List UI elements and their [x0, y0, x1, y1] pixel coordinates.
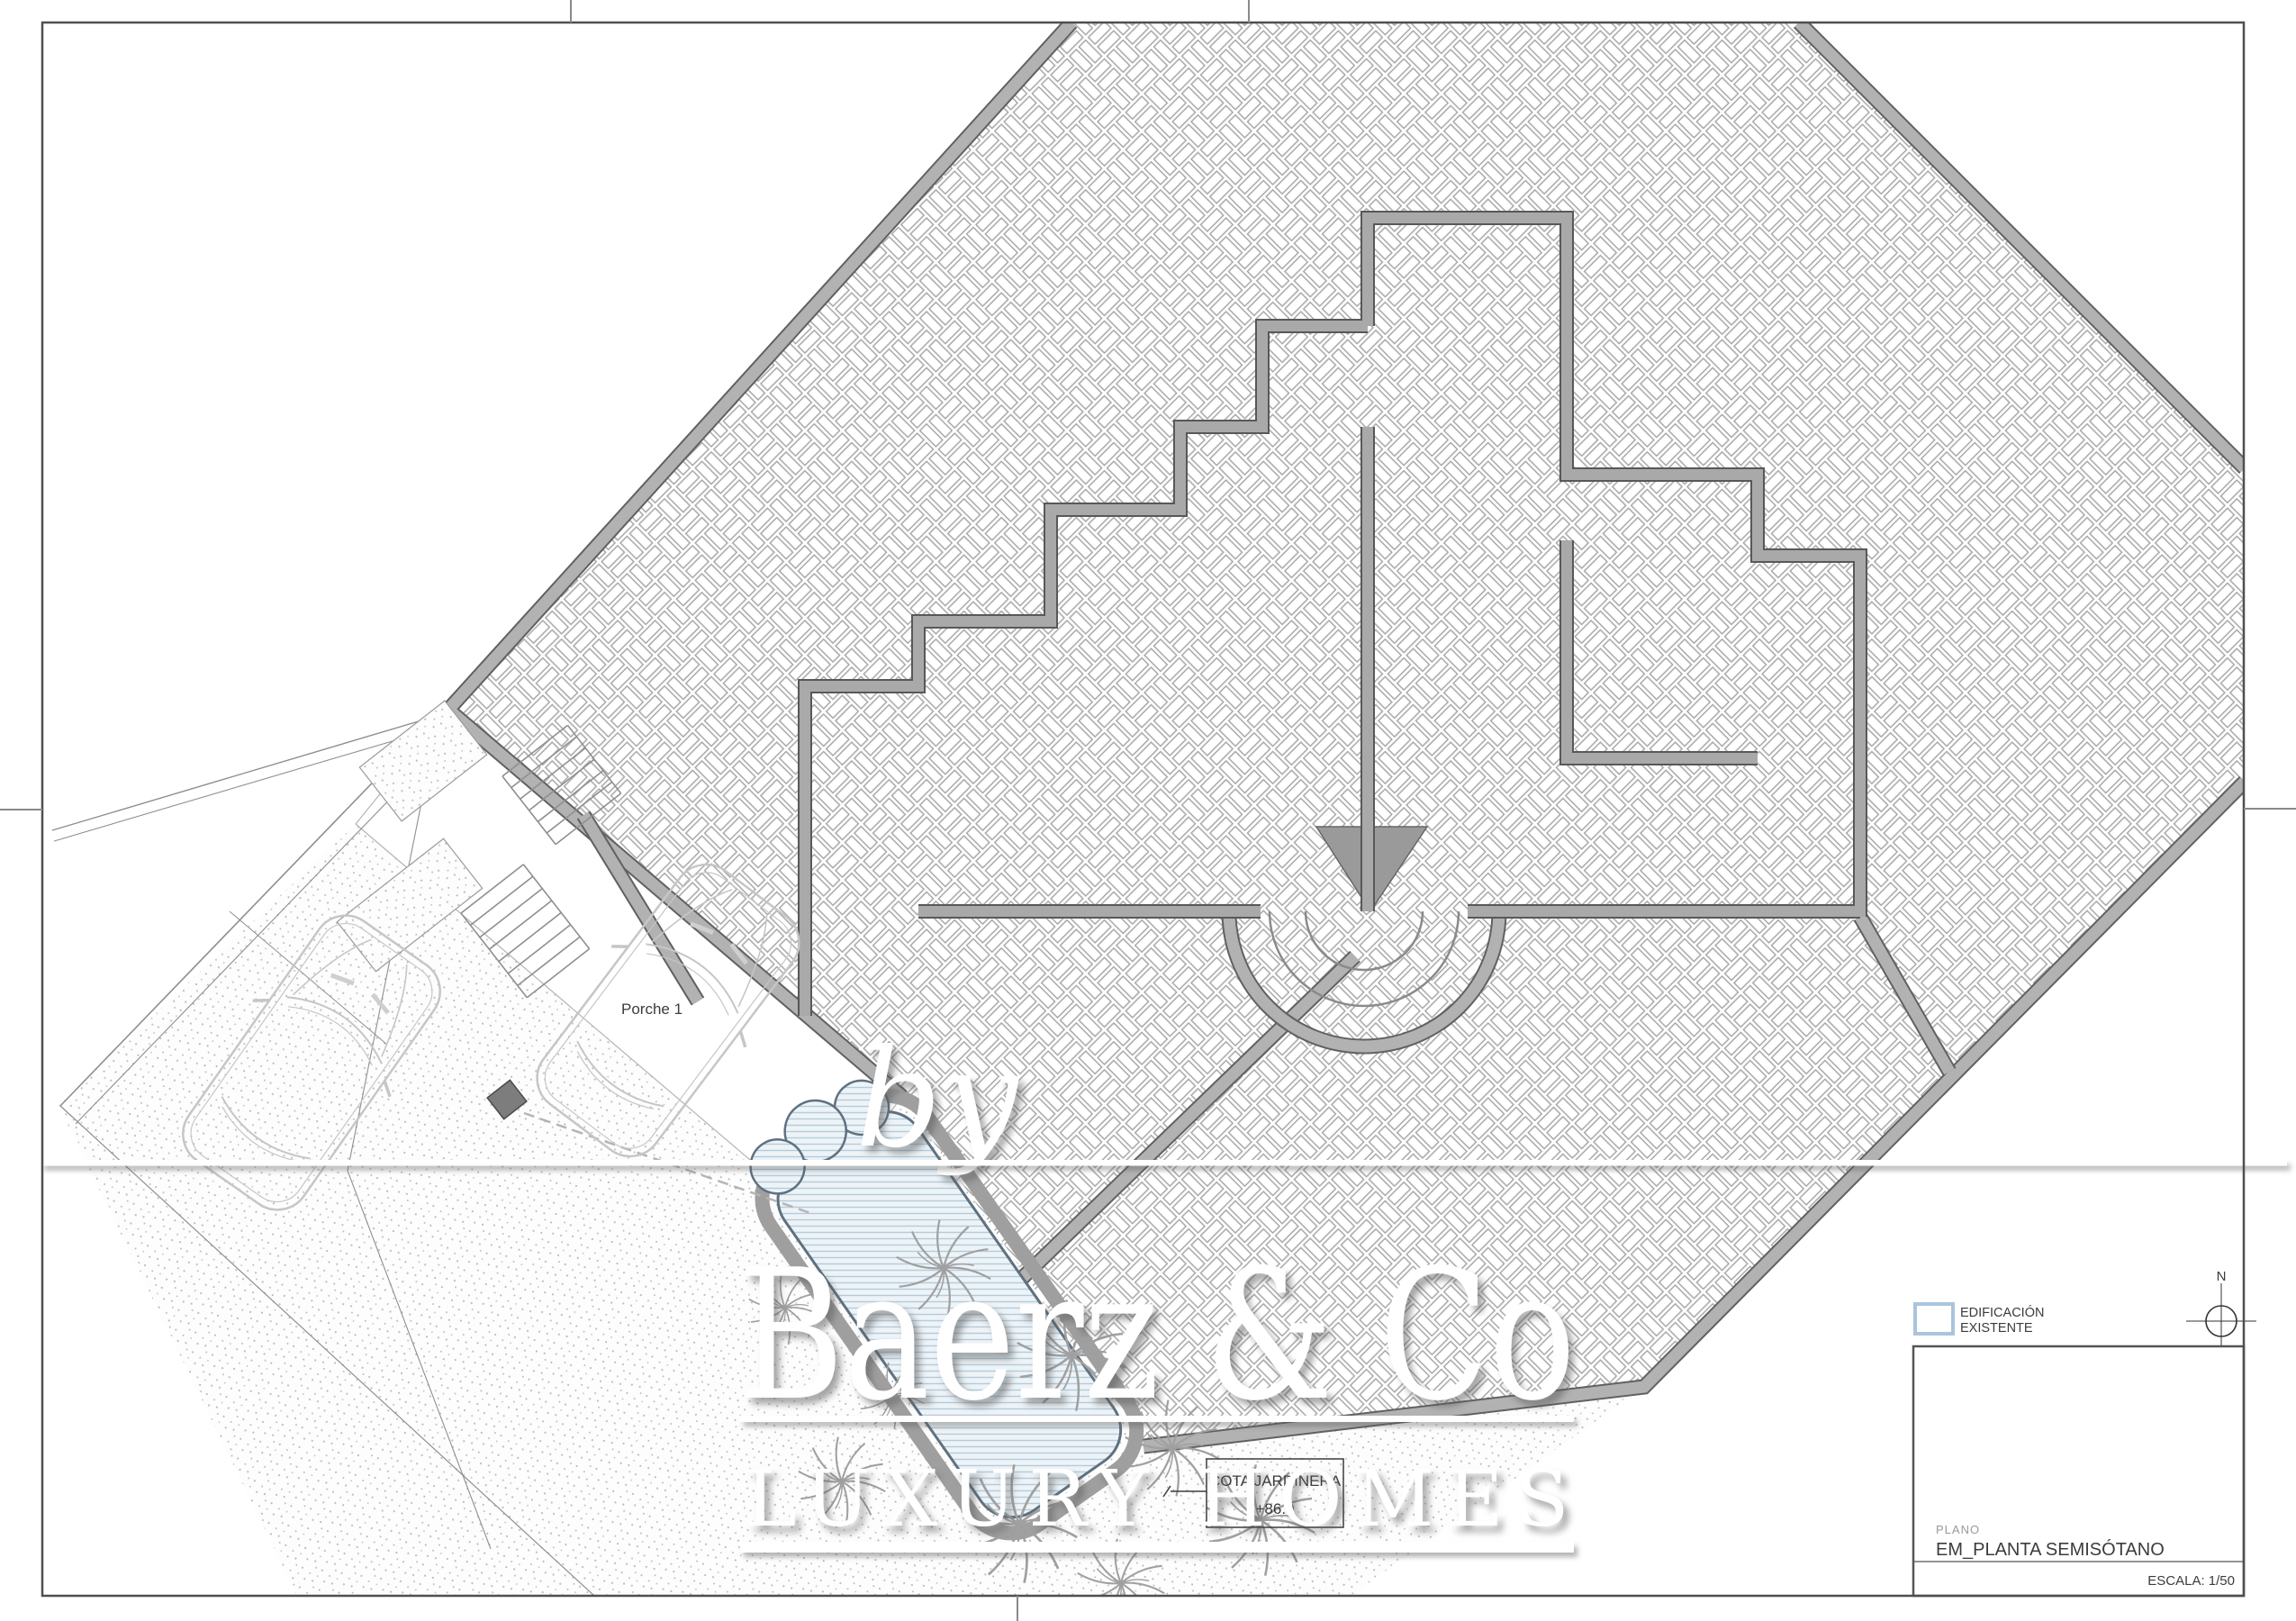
watermark-rule-bottom	[740, 1542, 1574, 1553]
title-block-drawing-name: EM_PLANTA SEMISÓTANO	[1936, 1539, 2165, 1560]
watermark-brand: Baerz & Co	[738, 1231, 1576, 1441]
watermark-rule-middle	[740, 1416, 1574, 1422]
architectural-plan-page: Porche 1 COTA JARDINERA +86.0 by Baerz &…	[0, 0, 2296, 1621]
legend-label-line1: EDIFICACIÓN	[1960, 1305, 2044, 1320]
site-plan-canvas: Porche 1 COTA JARDINERA +86.0 by Baerz &…	[0, 0, 2296, 1621]
title-block-field-label: PLANO	[1936, 1523, 1980, 1536]
north-label: N	[2217, 1269, 2227, 1284]
watermark-by: by	[855, 1021, 1020, 1178]
title-block: PLANO EM_PLANTA SEMISÓTANO ESCALA: 1/50	[1913, 1346, 2244, 1596]
title-block-scale: ESCALA: 1/50	[2147, 1573, 2235, 1589]
legend: EDIFICACIÓN EXISTENTE	[1915, 1304, 2044, 1336]
watermark-rule-top	[41, 1160, 2287, 1166]
legend-label-line2: EXISTENTE	[1960, 1321, 2033, 1336]
porch-label: Porche 1	[621, 1001, 682, 1018]
legend-swatch-existing-building	[1915, 1304, 1953, 1334]
